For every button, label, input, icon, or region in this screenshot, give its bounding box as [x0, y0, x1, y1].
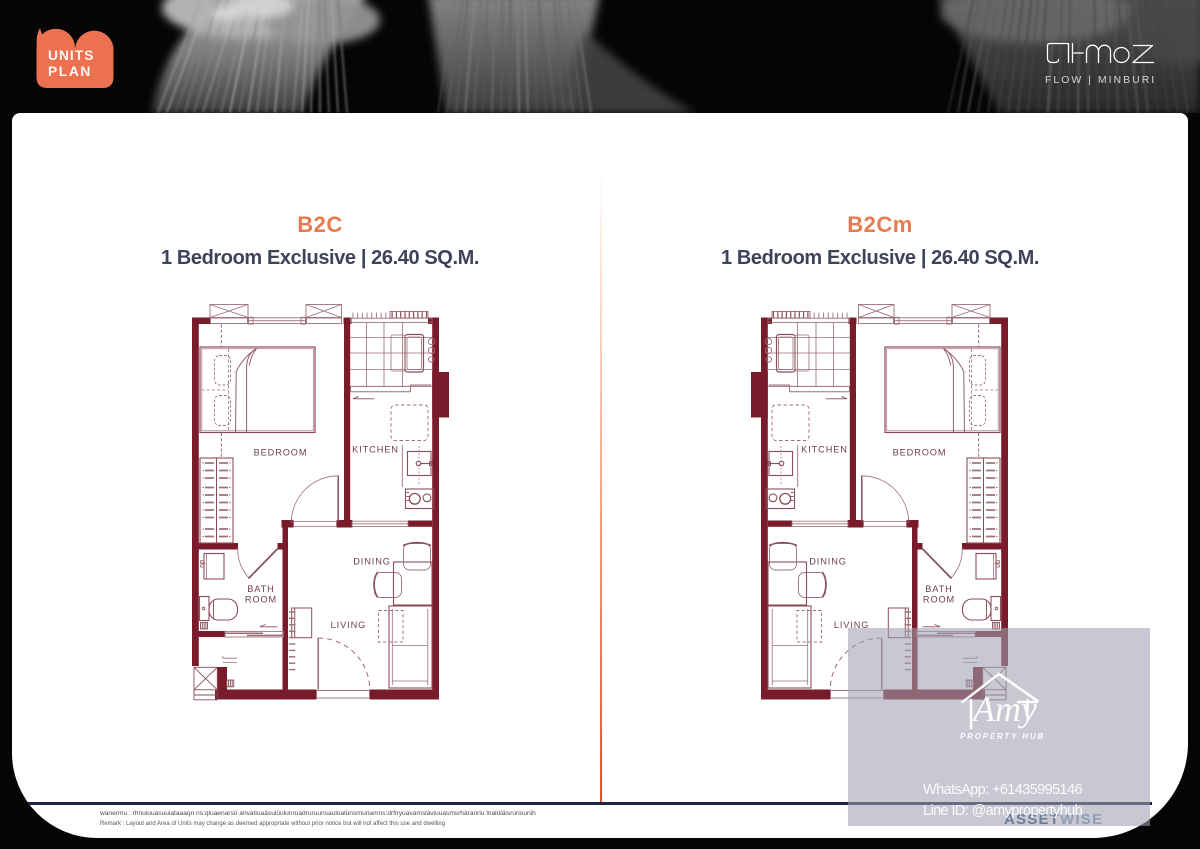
svg-text:BEDROOM: BEDROOM — [254, 448, 308, 458]
svg-text:UNITS: UNITS — [48, 48, 94, 63]
svg-text:DINING: DINING — [809, 557, 847, 567]
svg-text:BATH: BATH — [247, 584, 274, 594]
svg-text:KITCHEN: KITCHEN — [352, 445, 399, 455]
svg-text:KITCHEN: KITCHEN — [801, 445, 848, 455]
svg-text:BEDROOM: BEDROOM — [893, 448, 947, 458]
svg-text:BATH: BATH — [925, 584, 952, 594]
svg-text:PLAN: PLAN — [48, 64, 92, 79]
svg-text:ROOM: ROOM — [923, 595, 955, 605]
svg-text:DINING: DINING — [353, 557, 391, 567]
svg-text:FLOW | MINBURI: FLOW | MINBURI — [1045, 74, 1156, 86]
svg-text:LIVING: LIVING — [331, 620, 367, 630]
svg-text:ROOM: ROOM — [245, 595, 277, 605]
